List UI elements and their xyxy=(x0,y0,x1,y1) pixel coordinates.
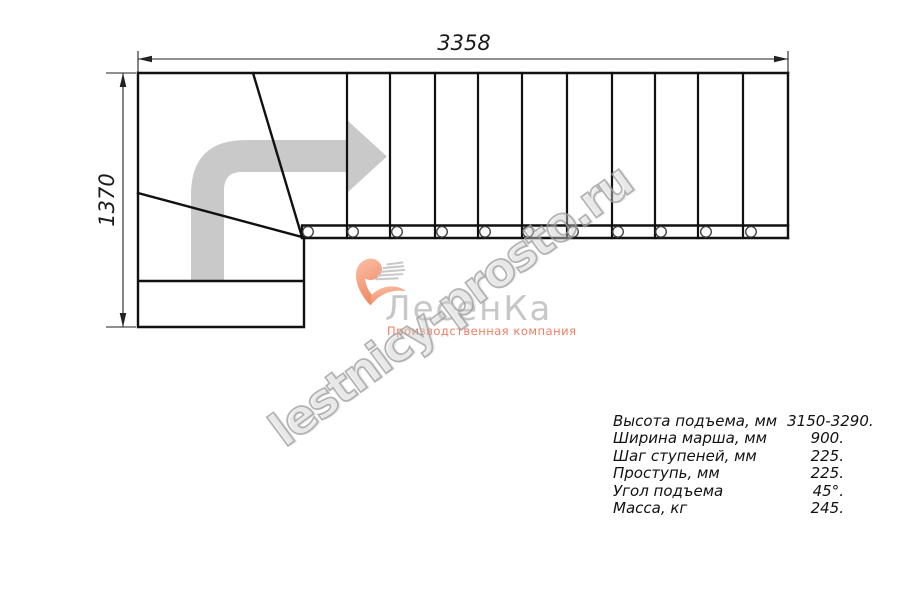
baluster-circle xyxy=(701,227,712,238)
baluster-circle xyxy=(568,227,579,238)
spec-value: 245. xyxy=(801,500,844,517)
flight-stringer-lines xyxy=(302,226,788,239)
technical-drawing-page: 3358 1370 xyxy=(0,0,900,600)
spec-label: Высота подъема, мм xyxy=(613,413,777,430)
baluster-circle xyxy=(480,227,491,238)
spec-row-height: Высота подъема, мм 3150-3290. xyxy=(613,413,844,430)
company-logo: ЛесенКа Производственная компания xyxy=(348,253,658,345)
baluster-circles xyxy=(303,227,757,238)
baluster-circle xyxy=(656,227,667,238)
baluster-circle xyxy=(523,227,534,238)
dim-arrow-down-icon xyxy=(120,313,127,327)
spec-row-climb-angle: Угол подъема 45°. xyxy=(613,483,844,500)
top-dimension-label: 3358 xyxy=(437,31,490,55)
spec-value: 3150-3290. xyxy=(777,413,874,430)
spec-label: Ширина марша, мм xyxy=(613,430,767,447)
tread-dividers xyxy=(347,73,743,238)
baluster-circle xyxy=(613,227,624,238)
baluster-circle xyxy=(348,227,359,238)
baluster-circle xyxy=(746,227,757,238)
spec-value: 225. xyxy=(801,448,844,465)
left-dimension-label: 1370 xyxy=(95,173,119,226)
spec-label: Проступь, мм xyxy=(613,465,720,482)
dim-arrow-right-icon xyxy=(774,56,788,63)
baluster-circle xyxy=(392,227,403,238)
spec-row-flight-width: Ширина марша, мм 900. xyxy=(613,430,844,447)
spec-label: Шаг ступеней, мм xyxy=(613,448,757,465)
logo-company-name: ЛесенКа xyxy=(385,289,552,329)
spec-row-step-pitch: Шаг ступеней, мм 225. xyxy=(613,448,844,465)
top-dimension: 3358 xyxy=(138,31,788,72)
baluster-circle xyxy=(437,227,448,238)
spec-label: Масса, кг xyxy=(613,500,687,517)
specs-table: Высота подъема, мм 3150-3290. Ширина мар… xyxy=(613,413,844,517)
spec-row-mass: Масса, кг 245. xyxy=(613,500,844,517)
spec-value: 45°. xyxy=(803,483,844,500)
spec-row-tread: Проступь, мм 225. xyxy=(613,465,844,482)
left-dimension: 1370 xyxy=(95,73,136,327)
logo-tagline: Производственная компания xyxy=(387,324,577,338)
baluster-circle xyxy=(303,227,314,238)
spec-label: Угол подъема xyxy=(613,483,723,500)
dim-arrow-left-icon xyxy=(138,56,152,63)
dim-arrow-up-icon xyxy=(120,73,127,87)
spec-value: 225. xyxy=(801,465,844,482)
spec-value: 900. xyxy=(801,430,844,447)
